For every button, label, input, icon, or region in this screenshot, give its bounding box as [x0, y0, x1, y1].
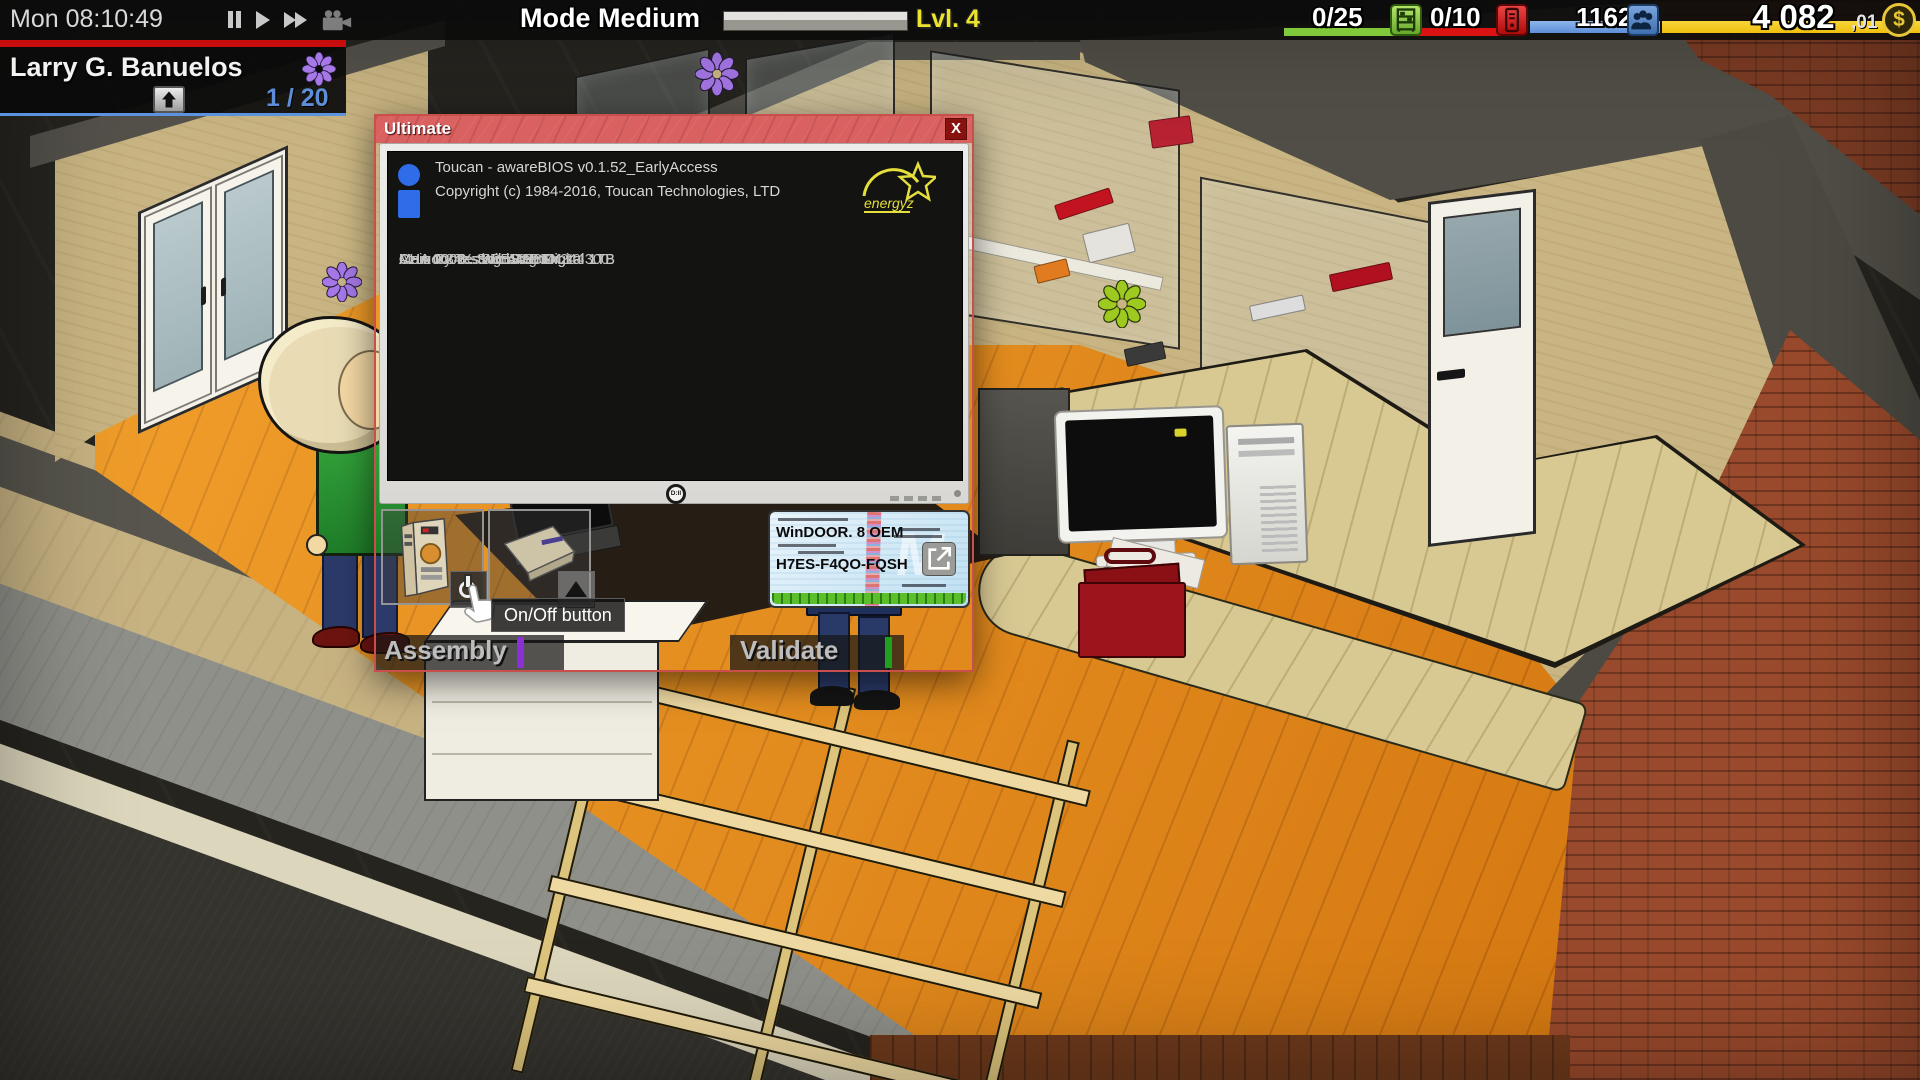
card-product-name: WinDOOR. 8 OEM — [776, 524, 903, 541]
card-fineprint — [898, 528, 940, 531]
bezel-mark — [890, 496, 899, 501]
upgrade-button[interactable] — [153, 86, 185, 113]
tooltip: On/Off button — [491, 598, 625, 632]
close-button[interactable]: X — [945, 118, 967, 140]
trait-flower-icon — [302, 52, 336, 86]
door-handle-icon — [221, 277, 226, 297]
drawer-line — [432, 701, 652, 703]
camera-button[interactable] — [320, 9, 354, 33]
bios-monitor: Toucan - awareBIOS v0.1.52_EarlyAccess C… — [379, 143, 969, 504]
external-link-icon — [923, 543, 955, 575]
validate-label: Validate — [740, 635, 838, 666]
employee-panel-underline — [0, 113, 346, 116]
door-handle-icon — [201, 286, 206, 306]
pause-icon — [228, 11, 233, 28]
dialog-title: Ultimate — [384, 119, 451, 139]
card-fineprint — [902, 584, 946, 587]
up-arrow-icon — [155, 88, 183, 111]
game-screen: Ultimate X Toucan - awareBIOS v0.1.52_Ea… — [0, 0, 1920, 1080]
customers-count: 1162 — [1576, 2, 1632, 33]
drawer-line — [432, 753, 652, 755]
character-shoe — [810, 686, 854, 706]
card-green-strip — [772, 593, 966, 604]
workstation-monitor[interactable] — [1054, 405, 1229, 544]
tower-vents — [1260, 485, 1298, 552]
workstation-screen — [1065, 415, 1217, 531]
svg-text:energyz: energyz — [864, 195, 914, 211]
bezel-mark — [904, 496, 913, 501]
shelf-rack-icon — [1392, 6, 1420, 34]
pause-button[interactable] — [228, 11, 242, 29]
validate-section: Validate — [730, 635, 904, 670]
door-glass — [1443, 208, 1521, 338]
workstation-tower[interactable] — [1226, 423, 1309, 566]
fast-forward-icon — [295, 12, 307, 28]
character-hand — [306, 534, 328, 556]
energy-star-logo-icon: energyz — [858, 156, 936, 220]
employee-panel-accent — [0, 40, 346, 47]
shelves-count: 0/25 — [1312, 2, 1363, 33]
fast-forward-button[interactable] — [284, 12, 310, 28]
game-clock: Mon 08:10:49 — [10, 5, 163, 34]
pc-tower-icon — [1498, 6, 1526, 34]
assembly-progress-bar — [517, 637, 524, 668]
capacity-count: 1 / 20 — [266, 84, 329, 113]
customers-icon — [1629, 6, 1657, 34]
up-arrow-icon — [565, 581, 587, 597]
card-license-key: H7ES-F4QO-FQSH — [776, 556, 908, 573]
xp-progress-bar — [723, 11, 908, 31]
toolbox-handle — [1104, 548, 1156, 564]
drive-bay — [1238, 449, 1294, 457]
builds-chip — [1496, 4, 1528, 36]
money-amount: 4 082 — [1752, 0, 1835, 36]
monitor-brand-logo-icon: D:ll — [666, 484, 686, 504]
door-leaf-left — [144, 186, 212, 424]
money-coin-icon: $ — [1882, 3, 1916, 37]
bios-screen: Toucan - awareBIOS v0.1.52_EarlyAccess C… — [387, 151, 963, 481]
assembly-label: Assembly — [384, 635, 507, 666]
top-bar: Mon 08:10:49 Mode Medium Lvl. 4 0/25 — [0, 0, 1920, 40]
employee-panel[interactable]: Larry G. Banuelos 1 / 20 — [0, 40, 346, 116]
character-shoe — [854, 690, 900, 710]
employee-name: Larry G. Banuelos — [10, 52, 243, 83]
bios-logo-icon — [398, 190, 420, 218]
card-fineprint — [778, 544, 836, 547]
money-cents: ,01 — [1851, 12, 1877, 34]
drive-bay — [1238, 437, 1294, 445]
power-button[interactable] — [450, 571, 487, 608]
power-icon — [466, 576, 470, 587]
bios-logo-icon — [398, 164, 420, 186]
screen-logo-mark — [1174, 428, 1186, 436]
card-fineprint — [778, 518, 848, 521]
bezel-mark — [932, 496, 941, 501]
monitor-power-led — [954, 490, 961, 497]
back-door[interactable] — [1428, 189, 1536, 547]
shelves-chip — [1390, 4, 1422, 36]
build-dialog: Ultimate X Toucan - awareBIOS v0.1.52_Ea… — [374, 114, 974, 672]
boxed-product-red[interactable] — [1148, 115, 1193, 149]
install-os-button[interactable] — [922, 542, 956, 576]
bios-line: CHA 0003... SumSag SX244 — [399, 252, 584, 272]
red-toolbox[interactable] — [1078, 582, 1186, 658]
level-label: Lvl. 4 — [916, 5, 980, 34]
flower-decal-purple-icon — [695, 52, 739, 96]
customers-chip — [1627, 4, 1659, 36]
pause-icon — [236, 11, 241, 28]
license-card[interactable]: M WinDOOR. 8 OEM H7ES-F4QO-FQSH — [768, 510, 970, 608]
builds-count: 0/10 — [1430, 2, 1481, 33]
character-shoe — [312, 626, 360, 648]
character-leg — [322, 550, 358, 634]
card-fineprint — [894, 535, 942, 538]
validate-progress-bar — [885, 637, 892, 668]
bezel-mark — [918, 496, 927, 501]
door-glass — [153, 201, 203, 392]
bios-header-line1: Toucan - awareBIOS v0.1.52_EarlyAccess — [435, 159, 718, 176]
dialog-title-bar[interactable]: Ultimate — [376, 116, 972, 143]
door-handle-icon — [1437, 368, 1465, 380]
play-button[interactable] — [256, 11, 270, 29]
mode-label: Mode Medium — [520, 3, 700, 34]
card-fineprint — [798, 551, 844, 554]
bios-header-line2: Copyright (c) 1984-2016, Toucan Technolo… — [435, 183, 780, 200]
flower-decal-green-icon — [1098, 280, 1146, 328]
assembly-section: Assembly — [376, 635, 564, 670]
